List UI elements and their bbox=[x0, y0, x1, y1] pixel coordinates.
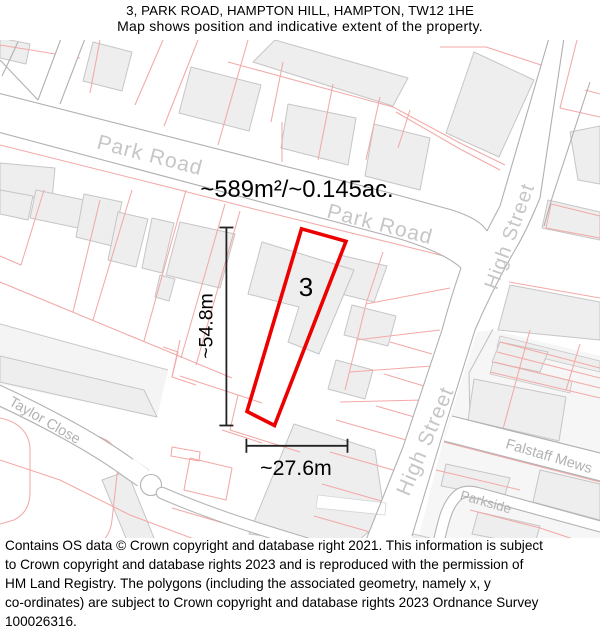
svg-text:~589m²/~0.145ac.: ~589m²/~0.145ac. bbox=[200, 176, 393, 203]
svg-text:~54.8m: ~54.8m bbox=[196, 293, 218, 359]
svg-text:~27.6m: ~27.6m bbox=[260, 456, 332, 480]
svg-text:3: 3 bbox=[299, 272, 313, 302]
